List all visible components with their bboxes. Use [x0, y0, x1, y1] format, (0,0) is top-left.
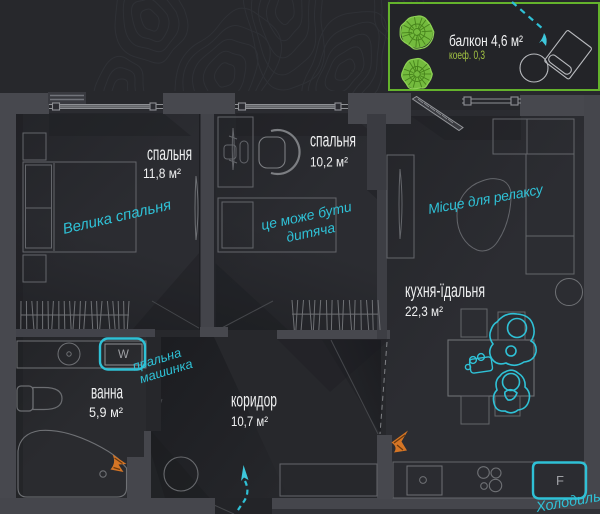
svg-text:ванна: ванна — [91, 383, 123, 404]
svg-text:10,2 м²: 10,2 м² — [310, 154, 348, 170]
svg-text:10,7 м²: 10,7 м² — [231, 413, 268, 429]
svg-text:11,8 м²: 11,8 м² — [143, 165, 181, 181]
svg-text:спальня: спальня — [310, 131, 356, 152]
svg-text:W: W — [118, 349, 129, 361]
svg-text:F: F — [556, 473, 564, 488]
svg-text:коридор: коридор — [231, 391, 277, 412]
svg-text:балкон 4,6 м²: балкон 4,6 м² — [449, 33, 523, 50]
svg-text:кухня-їдальня: кухня-їдальня — [405, 281, 485, 302]
svg-text:спальня: спальня — [147, 144, 192, 165]
svg-text:5,9 м²: 5,9 м² — [89, 404, 123, 420]
svg-text:22,3 м²: 22,3 м² — [405, 303, 443, 319]
svg-text:коеф. 0,3: коеф. 0,3 — [449, 50, 485, 62]
